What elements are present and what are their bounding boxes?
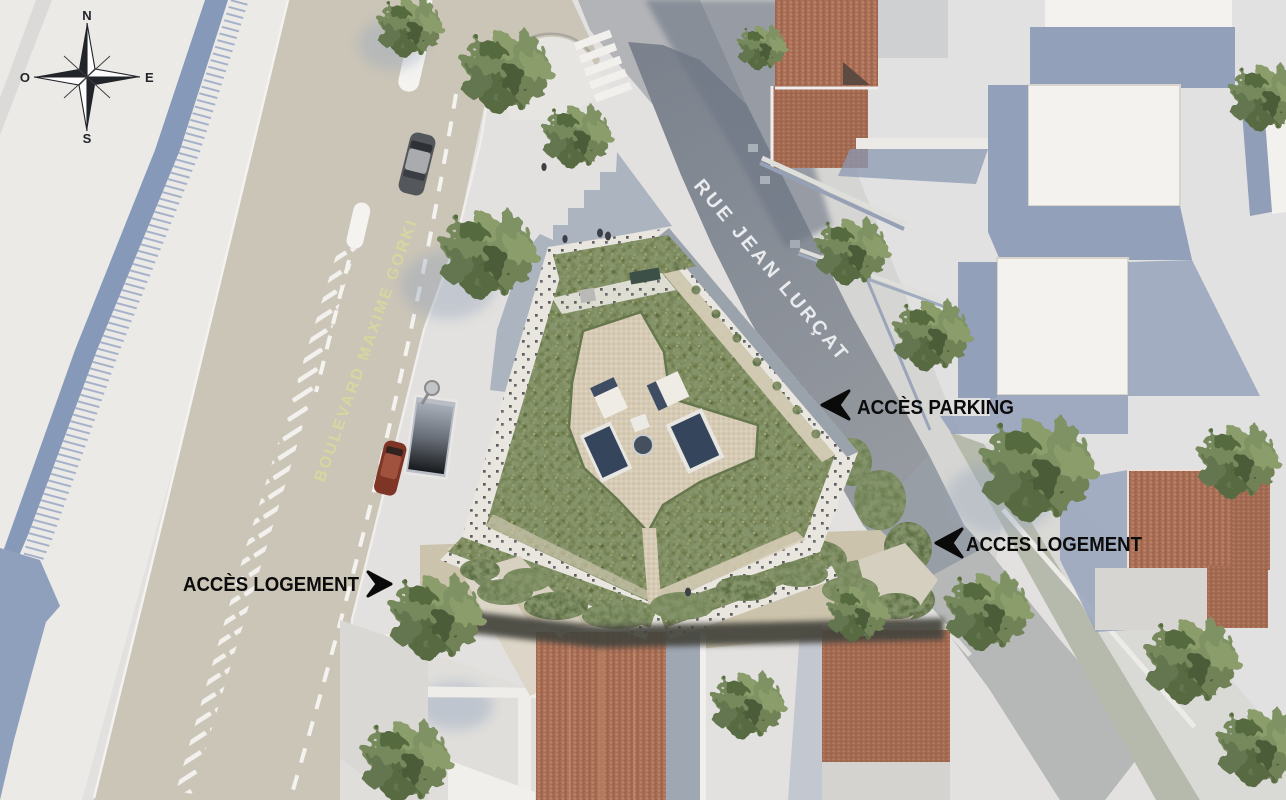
svg-text:ACCES LOGEMENT: ACCES LOGEMENT bbox=[966, 534, 1142, 556]
svg-text:O: O bbox=[20, 70, 30, 85]
svg-text:S: S bbox=[83, 131, 92, 146]
svg-text:N: N bbox=[82, 8, 91, 23]
svg-text:ACCÈS LOGEMENT: ACCÈS LOGEMENT bbox=[183, 573, 359, 596]
svg-text:E: E bbox=[145, 70, 154, 85]
svg-text:ACCÈS PARKING: ACCÈS PARKING bbox=[857, 396, 1014, 419]
